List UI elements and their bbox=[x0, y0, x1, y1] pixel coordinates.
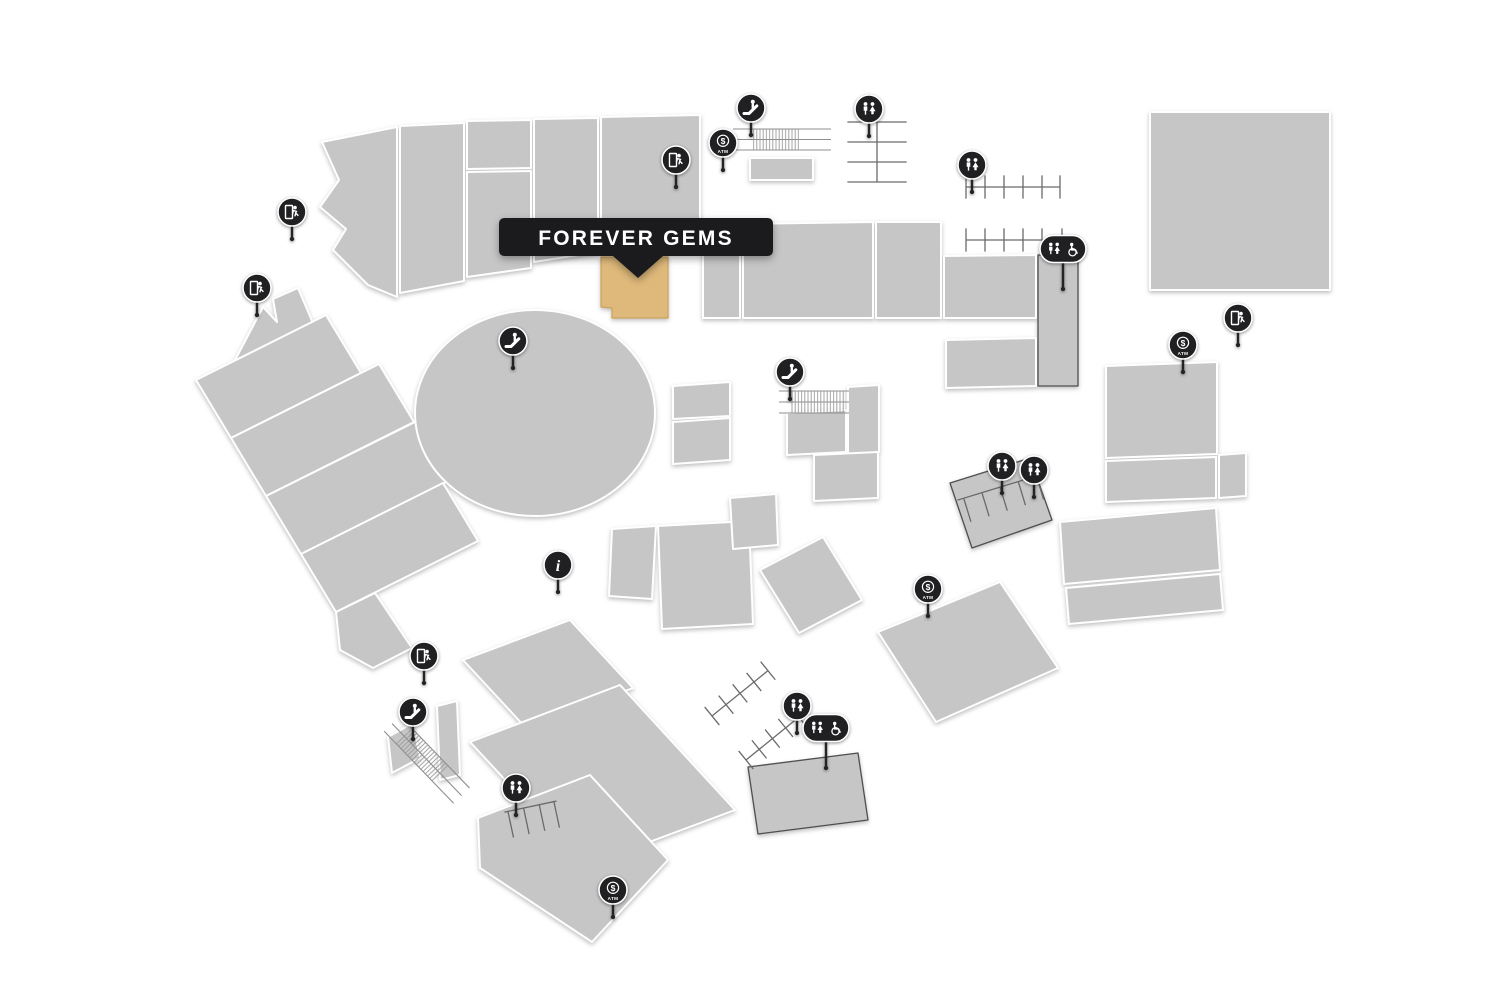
store-shape[interactable] bbox=[787, 410, 846, 455]
store-shape[interactable] bbox=[876, 222, 941, 318]
store-shape[interactable] bbox=[1219, 453, 1246, 498]
store-shape[interactable] bbox=[467, 120, 531, 169]
center-court[interactable] bbox=[415, 310, 655, 516]
store-shape[interactable] bbox=[400, 123, 464, 293]
store-shape[interactable] bbox=[750, 158, 813, 180]
store-shape[interactable] bbox=[609, 526, 656, 599]
svg-text:$: $ bbox=[611, 883, 616, 893]
svg-text:i: i bbox=[556, 558, 561, 575]
store-shape[interactable] bbox=[1106, 457, 1216, 502]
emergency-exit-icon[interactable] bbox=[278, 198, 306, 241]
svg-text:ATM: ATM bbox=[608, 896, 619, 901]
restroom-icon[interactable] bbox=[855, 95, 883, 138]
atm-icon[interactable]: $ATM bbox=[709, 129, 737, 172]
store-shape[interactable] bbox=[1038, 255, 1078, 386]
stairs-structure bbox=[966, 176, 1060, 198]
store-shape[interactable] bbox=[848, 385, 879, 455]
store-shape[interactable] bbox=[946, 338, 1036, 388]
stairs-structure bbox=[705, 662, 775, 724]
emergency-exit-icon[interactable] bbox=[410, 642, 438, 685]
store-shape[interactable] bbox=[1150, 112, 1330, 290]
store-shape[interactable] bbox=[748, 753, 868, 834]
info-icon[interactable]: i bbox=[544, 551, 572, 594]
store-shape[interactable] bbox=[814, 452, 878, 501]
store-shape[interactable] bbox=[320, 127, 397, 297]
store-shape[interactable] bbox=[1106, 362, 1217, 458]
svg-text:$: $ bbox=[721, 136, 726, 146]
store-shape[interactable] bbox=[1060, 508, 1220, 584]
svg-text:ATM: ATM bbox=[718, 149, 729, 154]
store-shape[interactable] bbox=[944, 255, 1036, 318]
store-shape[interactable] bbox=[878, 582, 1058, 722]
svg-text:ATM: ATM bbox=[1178, 351, 1189, 356]
store-shape[interactable] bbox=[673, 382, 730, 419]
restroom-icon[interactable] bbox=[958, 151, 986, 194]
tooltip-label: FOREVER GEMS bbox=[538, 227, 734, 250]
store-shape[interactable] bbox=[730, 494, 778, 549]
mall-map: $ATM$ATMi$ATM$ATM FOREVER GEMS bbox=[0, 0, 1500, 1000]
store-shape[interactable] bbox=[673, 418, 730, 464]
svg-text:ATM: ATM bbox=[923, 595, 934, 600]
emergency-exit-icon[interactable] bbox=[1224, 304, 1252, 347]
mall-map-canvas: $ATM$ATMi$ATM$ATM FOREVER GEMS bbox=[0, 0, 1500, 1000]
store-shape[interactable] bbox=[760, 537, 862, 633]
svg-text:$: $ bbox=[1181, 338, 1186, 348]
store-shape[interactable] bbox=[601, 115, 700, 232]
svg-text:$: $ bbox=[926, 582, 931, 592]
stairs-structure bbox=[848, 122, 906, 182]
